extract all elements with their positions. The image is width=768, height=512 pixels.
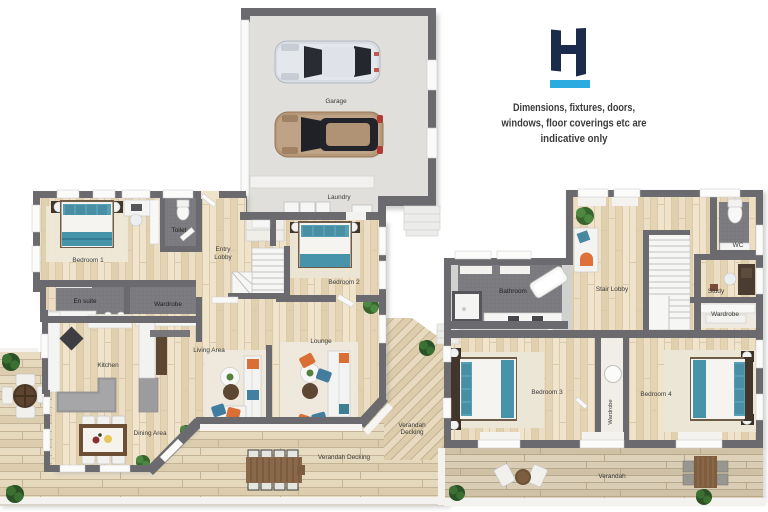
svg-text:Verandah: Verandah [598, 473, 626, 480]
svg-text:Wardrobe: Wardrobe [711, 311, 739, 318]
svg-text:Toilet: Toilet [172, 227, 187, 234]
svg-text:Kitchen: Kitchen [97, 362, 119, 369]
svg-text:indicative only: indicative only [541, 133, 609, 145]
svg-text:Lounge: Lounge [310, 338, 332, 345]
svg-text:Wardrobe: Wardrobe [608, 399, 614, 424]
svg-text:Bathroom: Bathroom [499, 288, 527, 295]
svg-text:Study: Study [708, 288, 725, 295]
svg-text:Stair Lobby: Stair Lobby [596, 286, 629, 293]
svg-text:En suite: En suite [73, 298, 97, 305]
svg-text:Entry: Entry [216, 246, 232, 253]
svg-text:Living Area: Living Area [193, 347, 225, 354]
svg-text:Bedroom 1: Bedroom 1 [72, 257, 104, 264]
svg-text:Bedroom 3: Bedroom 3 [531, 389, 563, 396]
svg-text:Lobby: Lobby [214, 254, 232, 261]
svg-text:Verandah Decking: Verandah Decking [318, 454, 371, 461]
svg-text:windows, floor coverings etc a: windows, floor coverings etc are [501, 118, 647, 130]
svg-text:Dimensions, fixtures, doors,: Dimensions, fixtures, doors, [513, 102, 635, 114]
svg-text:Garage: Garage [325, 98, 347, 105]
svg-text:Wardrobe: Wardrobe [154, 301, 182, 308]
svg-text:Verandah: Verandah [398, 422, 426, 429]
svg-text:Decking: Decking [400, 429, 424, 436]
svg-text:Bedroom 2: Bedroom 2 [328, 279, 360, 286]
svg-text:Bedroom 4: Bedroom 4 [640, 391, 672, 398]
svg-text:Laundry: Laundry [327, 194, 351, 201]
svg-text:WC: WC [733, 242, 744, 249]
svg-text:Dining Area: Dining Area [133, 430, 166, 437]
